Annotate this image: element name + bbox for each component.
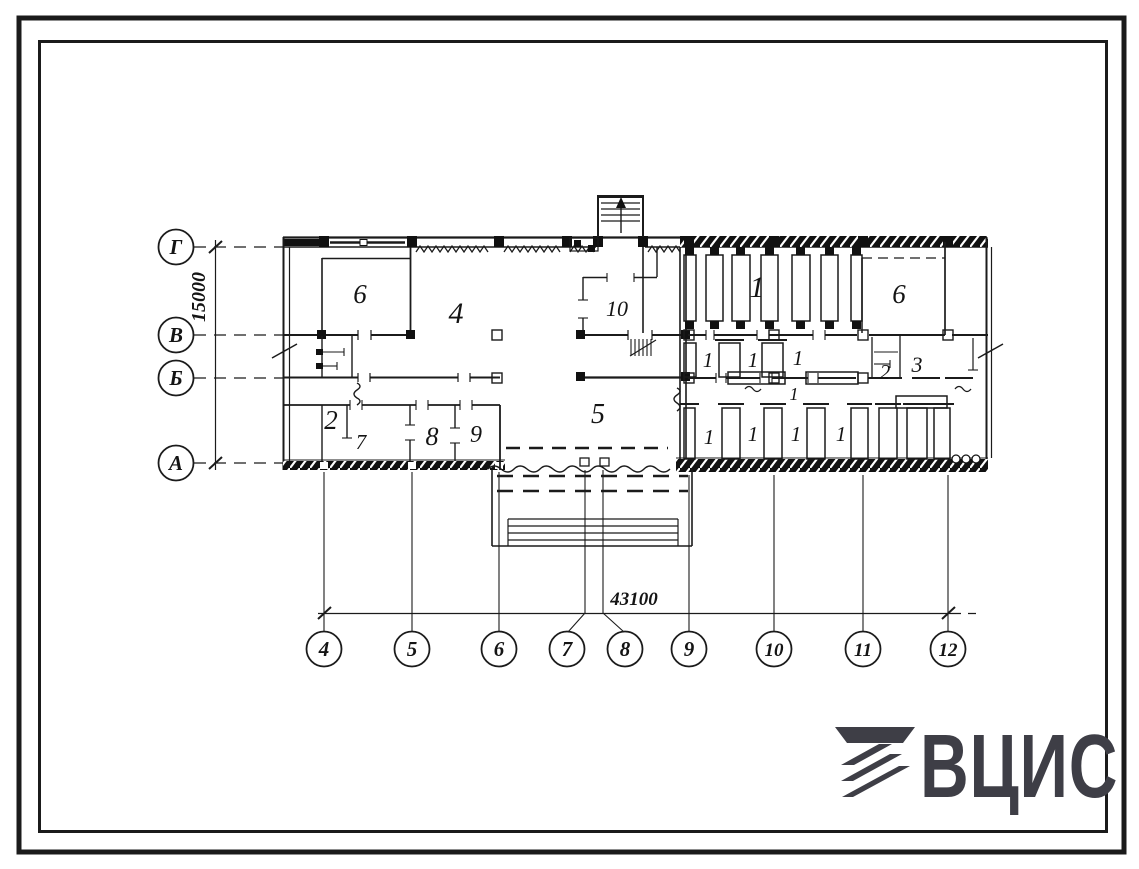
room-label-1: 1 [791, 422, 802, 446]
col-axis-label: 6 [494, 637, 505, 661]
col-axis-9: 9 [672, 632, 707, 667]
grid6-columns [492, 330, 502, 383]
stacks-bottom-row [680, 404, 954, 459]
building-plan: 6 4 2 7 8 9 5 10 1 1 1 1 1 1 1 1 1 6 2 3 [272, 195, 1003, 546]
left-wall [272, 237, 297, 470]
col-axis-label: 7 [562, 637, 574, 661]
room-label-5: 5 [591, 399, 605, 430]
room-label-1: 1 [748, 348, 759, 372]
wall-break-squiggle [745, 387, 761, 392]
col-axis-11: 11 [846, 632, 881, 667]
vcis-logo-icon [835, 727, 915, 797]
axis-v-wall-left [283, 330, 415, 340]
stacks-top-row [684, 247, 862, 329]
wall-break-squiggle [955, 387, 971, 392]
open-edge-wave [488, 466, 670, 472]
axis-b-wall-left [283, 373, 500, 405]
room-label-6: 6 [892, 279, 906, 309]
col-axis-label: 9 [684, 637, 695, 661]
room-label-1: 1 [793, 346, 804, 370]
col-axis-6: 6 [482, 632, 517, 667]
center-corridor-walls [576, 330, 690, 381]
row-axis-g: Г [159, 230, 285, 265]
room-label-6: 6 [353, 279, 367, 309]
row-axis-label: А [167, 451, 183, 475]
col-axis-label: 4 [318, 637, 330, 661]
interior-stair [630, 339, 656, 356]
room-label-1: 1 [703, 348, 714, 372]
vcis-logo-text: ВЦИС [920, 716, 1118, 817]
room-label-4: 4 [449, 297, 464, 330]
room-label-1: 1 [704, 425, 715, 449]
bottom-wall-right [676, 455, 988, 472]
wall-break-squiggle [674, 388, 680, 411]
floor-plan-drawing: Г В Б А 15000 [0, 0, 1139, 869]
room-label-1: 1 [748, 422, 759, 446]
row-axis-b: Б [159, 361, 285, 396]
col-axes: 43100 4 5 6 7 8 9 10 [307, 470, 977, 667]
room-label-9: 9 [470, 422, 482, 448]
room-label-2: 2 [880, 360, 891, 384]
col-axis-label: 12 [939, 640, 959, 661]
room-label-7: 7 [356, 430, 368, 454]
drawing-sheet: Г В Б А 15000 [0, 0, 1139, 869]
room-label-2: 2 [324, 405, 338, 435]
col-axis-10: 10 [757, 632, 792, 667]
col-axis-label: 11 [854, 640, 872, 661]
col-axis-label: 8 [620, 637, 631, 661]
col-axis-label: 10 [765, 640, 785, 661]
vertical-dimension-label: 15000 [188, 272, 210, 322]
col-axis-7: 7 [550, 632, 585, 667]
room-label-8: 8 [426, 422, 439, 451]
vertical-dimension: 15000 [188, 240, 222, 470]
right-end-corridor [968, 338, 978, 370]
col-axis-label: 5 [407, 637, 418, 661]
row-axis-label: Г [169, 235, 183, 259]
room-label-1: 1 [790, 384, 799, 404]
room-label-3: 3 [911, 352, 923, 377]
room-label-1: 1 [750, 271, 765, 304]
row-axis-label: В [168, 323, 183, 347]
bottom-wall-left [283, 460, 505, 470]
col-axis-8: 8 [608, 632, 643, 667]
row-axis-label: Б [168, 366, 182, 390]
row-axis-a: А [159, 446, 285, 481]
room-labels: 6 4 2 7 8 9 5 10 1 1 1 1 1 1 1 1 1 6 2 3 [324, 271, 922, 454]
wall-break-squiggle [354, 383, 360, 405]
top-wall [283, 236, 988, 252]
room-label-1: 1 [836, 422, 847, 446]
sanitary-rooms [316, 336, 352, 377]
vcis-logo: ВЦИС [835, 716, 1118, 817]
hall-5-front [488, 448, 688, 491]
horizontal-dimension-label: 43100 [609, 589, 658, 610]
col-axis-5: 5 [395, 632, 430, 667]
entrance-porch [492, 470, 692, 546]
axis-v-wall-right [684, 330, 988, 340]
wall-break-symbol [978, 344, 1003, 358]
col-axis-4: 4 [307, 632, 342, 667]
right-wall [978, 237, 1003, 461]
row-axis-v: В [159, 318, 285, 353]
top-vestibule [570, 195, 643, 252]
room-label-10: 10 [606, 296, 628, 321]
row-axes: Г В Б А [159, 230, 285, 481]
col-axis-12: 12 [931, 632, 966, 667]
